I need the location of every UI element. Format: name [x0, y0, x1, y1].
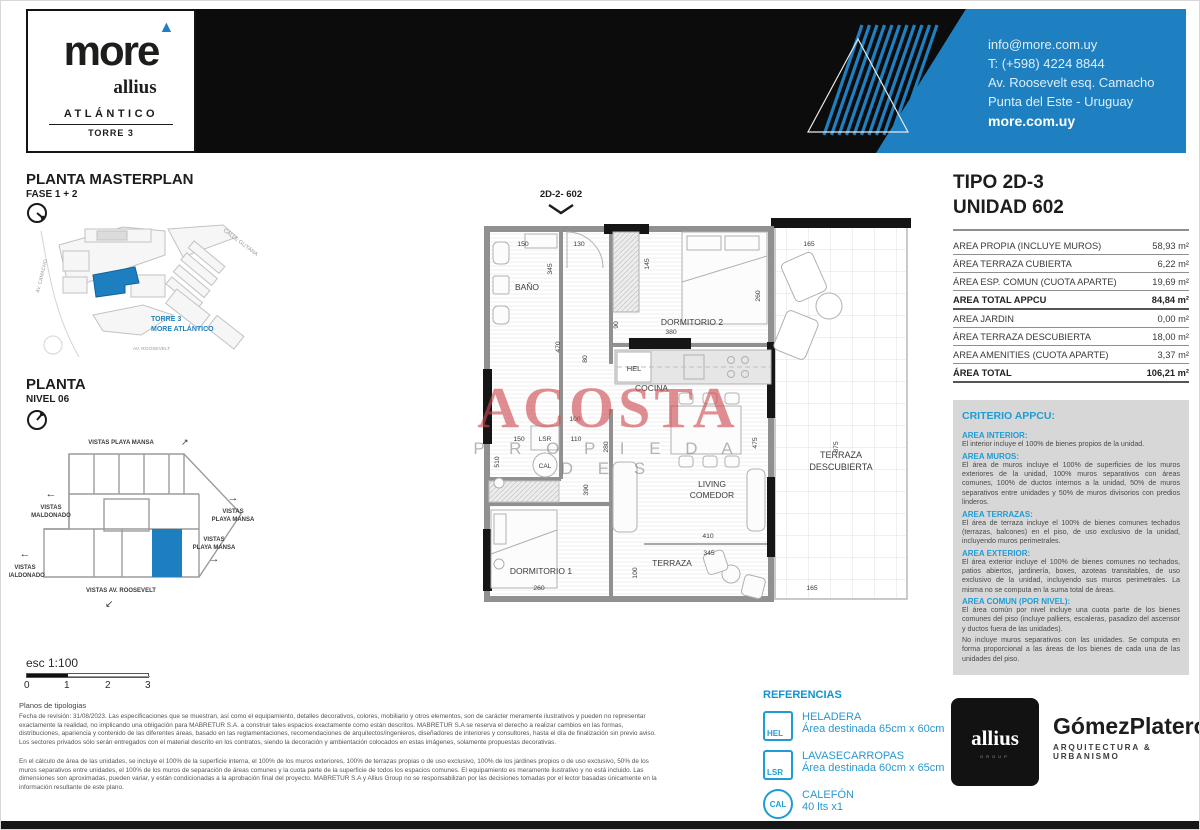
level-subtitle: NIVEL 06	[26, 394, 69, 405]
table-row: AREA JARDIN0,00 m²	[953, 310, 1189, 328]
reference-lavasecarropas: LSR LAVASECARROPAS Área destinada 60cm x…	[763, 750, 948, 780]
svg-text:MALDONADO: MALDONADO	[31, 513, 71, 519]
notes-title: Planos de tipologias	[19, 701, 86, 710]
svg-text:VISTAS: VISTAS	[40, 505, 61, 511]
level-title: PLANTA	[26, 376, 86, 393]
reference-heladera: HEL HELADERA Área destinada 65cm x 60cm	[763, 711, 948, 741]
firm-subtitle: ARQUITECTURA & URBANISMO	[1053, 743, 1200, 761]
dim: 100	[632, 567, 639, 579]
tower-3-label: TORRE 3	[151, 316, 181, 323]
table-row-total: ÁREA TOTAL106,21 m²	[953, 364, 1189, 383]
bottom-bar	[1, 821, 1199, 829]
criterio-text: El área de terraza incluye el 100% de bi…	[962, 519, 1180, 547]
svg-text:VISTAS: VISTAS	[203, 537, 224, 543]
arrow-up-right-icon: ↗	[181, 437, 189, 447]
disclaimer-paragraph-2: En el cálculo de área de las unidades, s…	[19, 758, 657, 793]
room-label-cocina: COCINA	[635, 383, 668, 393]
svg-text:PLAYA MANSA: PLAYA MANSA	[193, 545, 236, 551]
area-table: AREA PROPIA (INCLUYE MUROS)58,93 m² ÁREA…	[953, 237, 1189, 383]
unit-summary: TIPO 2D-3 UNIDAD 602 AREA PROPIA (INCLUY…	[953, 171, 1189, 675]
table-row: ÁREA ESP. COMUN (CUOTA APARTE)19,69 m²	[953, 273, 1189, 291]
contact-website: more.com.uy	[988, 112, 1154, 131]
dim: 90	[613, 321, 620, 329]
table-row: AREA PROPIA (INCLUYE MUROS)58,93 m²	[953, 237, 1189, 255]
arrow-left-icon: ←	[20, 548, 31, 560]
room-label-terraza-desc-1: TERRAZA	[820, 450, 862, 460]
dim: 150	[517, 241, 529, 248]
arrow-down-left-icon: ↙	[105, 599, 113, 610]
dim: 410	[702, 533, 714, 540]
firm-name: GómezPlatero	[1053, 713, 1200, 740]
triangle-stripes-icon	[796, 17, 986, 149]
references-block: REFERENCIAS HEL HELADERA Área destinada …	[763, 689, 948, 828]
room-label-living-2: COMEDOR	[690, 490, 734, 500]
criterio-heading: AREA INTERIOR:	[962, 431, 1180, 440]
dim: 80	[582, 355, 589, 363]
contact-email: info@more.com.uy	[988, 35, 1154, 54]
street-label-roosevelt: AV. ROOSEVELT	[133, 346, 170, 352]
dim: 100	[569, 416, 581, 423]
divider	[953, 229, 1189, 231]
arrow-right-icon: →	[209, 553, 220, 565]
highlighted-unit	[152, 529, 182, 577]
references-title: REFERENCIAS	[763, 689, 948, 701]
dim: 260	[755, 290, 762, 302]
arrow-right-icon: →	[228, 492, 239, 504]
room-label-living-1: LIVING	[698, 479, 726, 489]
dim: 130	[573, 241, 585, 248]
dim: 145	[644, 258, 651, 270]
svg-text:VISTAS: VISTAS	[222, 509, 243, 515]
criterio-heading: AREA EXTERIOR:	[962, 549, 1180, 558]
dim: 150	[513, 436, 525, 443]
hel-icon: HEL	[763, 711, 793, 741]
room-label-bano: BAÑO	[515, 282, 539, 292]
room-label-dorm2: DORMITORIO 2	[661, 317, 723, 327]
dim: 380	[665, 329, 677, 336]
dim: 110	[571, 436, 582, 443]
contact-address-1: Av. Roosevelt esq. Camacho	[988, 73, 1154, 92]
divider	[49, 124, 173, 125]
criterio-text: El interior incluye el 100% de bienes pr…	[962, 440, 1180, 449]
dim: 475	[752, 437, 759, 449]
header-banner: info@more.com.uy T: (+598) 4224 8844 Av.…	[26, 9, 1186, 153]
svg-text:MALDONADO: MALDONADO	[9, 573, 45, 579]
contact-phone: T: (+598) 4224 8844	[988, 54, 1154, 73]
appliance-label-lsr: LSR	[539, 436, 552, 443]
masterplan-map: CALLE GUYANA AV. CAMACHO TORRE 3 MORE AT…	[23, 197, 268, 369]
street-label-camacho: AV. CAMACHO	[35, 259, 49, 294]
disclaimer-paragraph-1: Fecha de revisión: 31/08/2023. Las espec…	[19, 713, 657, 748]
scale-ticks: 0 1 2 3	[26, 680, 157, 692]
appliance-label-hel: HEL	[627, 364, 642, 373]
more-logo: more▲	[64, 27, 159, 75]
dim: 280	[603, 441, 610, 453]
architecture-firm: GómezPlatero ARQUITECTURA & URBANISMO	[1053, 713, 1200, 761]
vista-top-label: VISTAS PLAYA MANSA	[88, 440, 154, 446]
street-label-guyana: CALLE GUYANA	[222, 228, 259, 258]
masterplan-title: PLANTA MASTERPLAN	[26, 171, 194, 188]
dim: 390	[583, 484, 590, 496]
table-row-total-appcu: AREA TOTAL APPCU84,84 m²	[953, 291, 1189, 310]
scale-label: esc 1:100	[26, 656, 166, 670]
criterio-text: El área común por nivel incluye una cuot…	[962, 606, 1180, 634]
dim: 165	[806, 585, 818, 592]
room-label-terraza: TERRAZA	[652, 558, 692, 568]
criterio-heading: AREA MUROS:	[962, 452, 1180, 461]
cal-icon: CAL	[763, 789, 793, 819]
dim: 470	[555, 341, 562, 353]
criterio-heading: AREA TERRAZAS:	[962, 510, 1180, 519]
triangle-icon: ▲	[159, 19, 175, 37]
appliance-label-cal: CAL	[539, 463, 552, 470]
lsr-icon: LSR	[763, 750, 793, 780]
tower-name: TORRE 3	[28, 128, 194, 138]
project-name: ATLÁNTICO	[28, 108, 194, 120]
scale-bar: esc 1:100 0 1 2 3	[26, 656, 166, 692]
contact-address-2: Punta del Este - Uruguay	[988, 92, 1154, 111]
chevron-down-icon	[549, 205, 573, 213]
plan-sheet: info@more.com.uy T: (+598) 4224 8844 Av.…	[0, 0, 1200, 830]
dim: 260	[533, 585, 545, 592]
dim: 875	[833, 441, 840, 453]
type-title: TIPO 2D-3	[953, 171, 1189, 196]
table-row: ÁREA TERRAZA DESCUBIERTA18,00 m²	[953, 328, 1189, 346]
vista-bottom-label: VISTAS AV. ROOSEVELT	[86, 588, 156, 594]
room-label-dorm1: DORMITORIO 1	[510, 566, 572, 576]
allius-logo: allius	[76, 77, 194, 99]
table-row: AREA AMENITIES (CUOTA APARTE)3,37 m²	[953, 346, 1189, 364]
table-row: ÁREA TERRAZA CUBIERTA6,22 m²	[953, 255, 1189, 273]
svg-text:VISTAS: VISTAS	[14, 565, 35, 571]
dim: 510	[494, 456, 501, 468]
dim: 345	[547, 263, 554, 275]
criterio-text: El área exterior incluye el 100% de bien…	[962, 558, 1180, 595]
level-key-plan: VISTAS PLAYA MANSA ↗ ← VISTAS MALDONADO …	[9, 429, 271, 619]
criterio-title: CRITERIO APPCU:	[962, 410, 1180, 422]
room-label-terraza-desc-2: DESCUBIERTA	[809, 462, 872, 472]
dim: 345	[703, 550, 715, 557]
contact-block: info@more.com.uy T: (+598) 4224 8844 Av.…	[988, 35, 1154, 131]
criterio-heading: AREA COMUN (POR NIVEL):	[962, 597, 1180, 606]
criterio-appcu-box: CRITERIO APPCU: AREA INTERIOR: El interi…	[953, 400, 1189, 675]
dim: 165	[803, 241, 815, 248]
unit-label: 2D-2- 602	[540, 189, 582, 200]
floor-plan: 2D-2- 602	[479, 184, 949, 649]
arrow-left-icon: ←	[46, 488, 57, 500]
criterio-text: El área de muros incluye el 100% de supe…	[962, 461, 1180, 508]
allius-logo-box: allius GROUP	[951, 698, 1039, 786]
brand-logo-box: more▲ allius ATLÁNTICO TORRE 3	[26, 9, 196, 153]
svg-text:PLAYA MANSA: PLAYA MANSA	[212, 517, 255, 523]
unit-title: UNIDAD 602	[953, 196, 1189, 221]
more-atlantico-label: MORE ATLÁNTICO	[151, 324, 214, 333]
criterio-text: No incluye muros separativos con las uni…	[962, 636, 1180, 664]
reference-calefon: CAL CALEFÓN 40 lts x1	[763, 789, 948, 819]
